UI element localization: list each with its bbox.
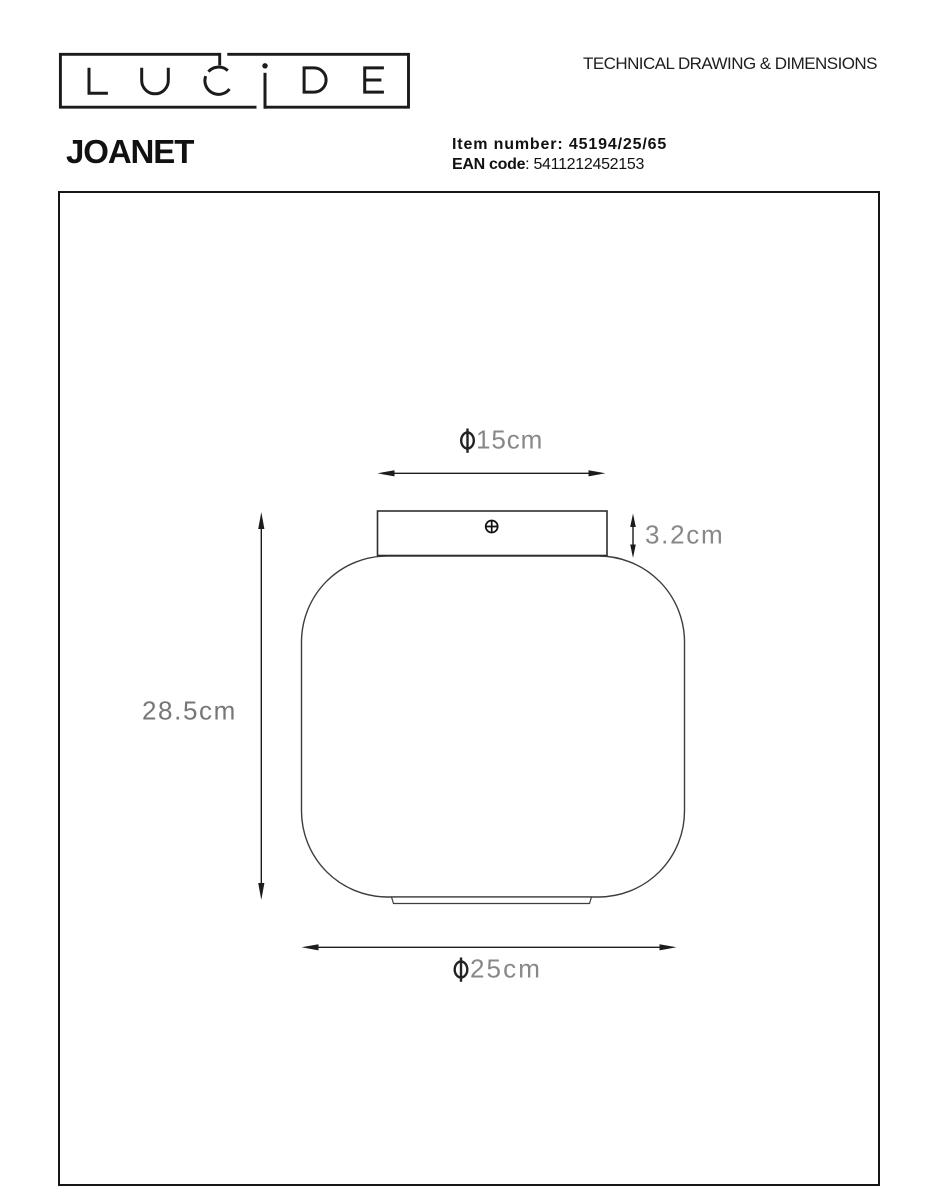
svg-text:25cm: 25cm xyxy=(470,954,542,984)
svg-text:28.5cm: 28.5cm xyxy=(142,696,237,726)
svg-text:3.2cm: 3.2cm xyxy=(645,520,724,550)
svg-text:15cm: 15cm xyxy=(476,425,543,455)
